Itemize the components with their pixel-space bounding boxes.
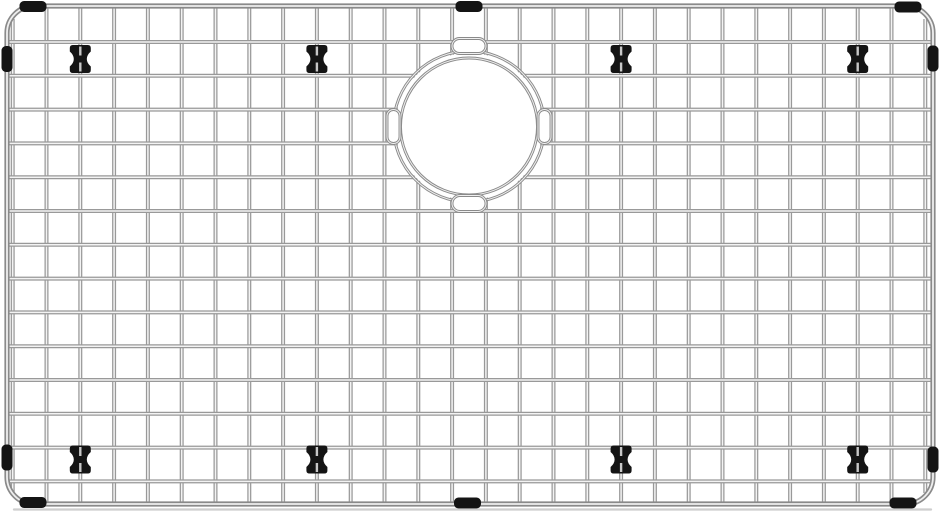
wire-loop-bottom bbox=[452, 196, 486, 212]
edge-bumper-bottom bbox=[20, 497, 47, 508]
wire-loop-right bbox=[538, 110, 551, 144]
edge-bumper-left bbox=[2, 46, 13, 72]
sink-grid-photo bbox=[0, 0, 940, 511]
drain-opening-mask bbox=[396, 53, 543, 200]
edge-bumper-top bbox=[20, 1, 47, 12]
wire-loop-left bbox=[387, 110, 400, 144]
edge-bumper-left bbox=[2, 445, 13, 471]
wire-loop-top bbox=[452, 39, 486, 54]
edge-bumper-right bbox=[928, 447, 939, 473]
edge-bumper-top bbox=[895, 2, 922, 13]
edge-bumper-bottom bbox=[890, 498, 917, 509]
edge-bumper-bottom bbox=[454, 498, 481, 509]
edge-bumper-right bbox=[928, 46, 939, 72]
edge-bumper-top bbox=[456, 1, 483, 12]
product-image bbox=[0, 0, 940, 511]
